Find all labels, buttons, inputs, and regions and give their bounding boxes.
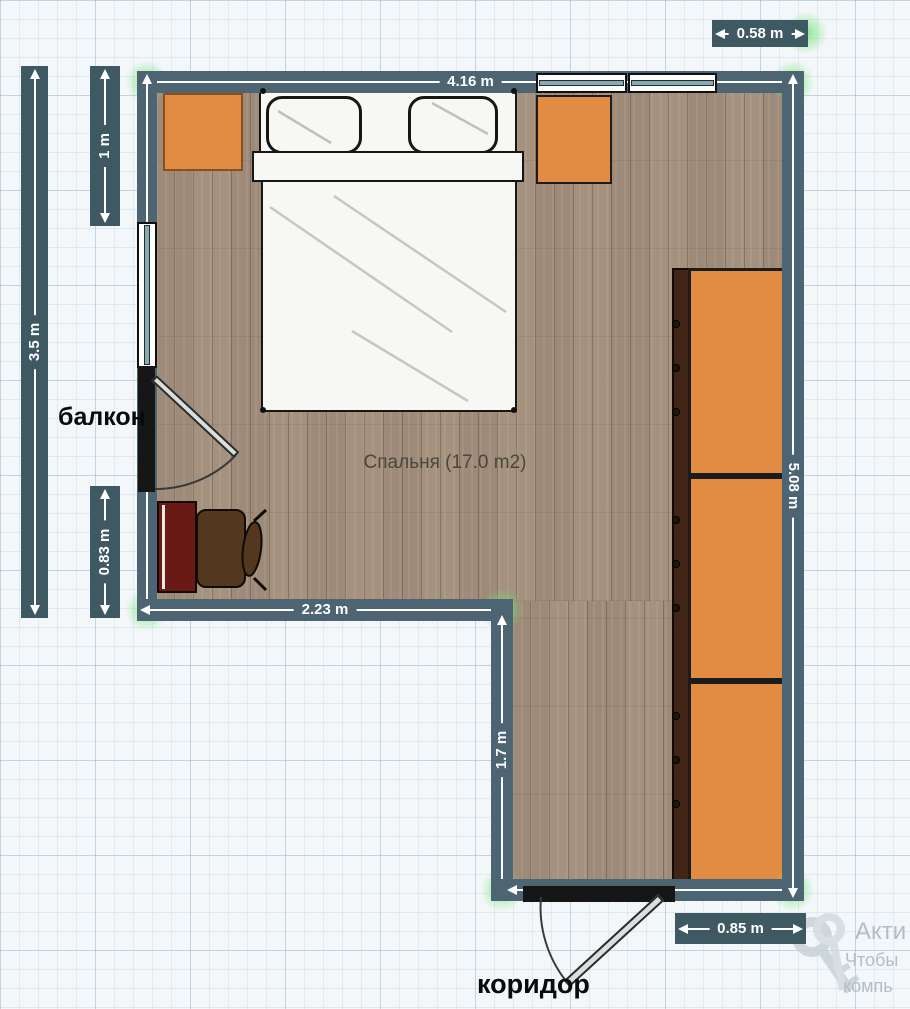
nightstand-left[interactable] — [163, 93, 243, 171]
bed-corner-dot — [511, 407, 517, 413]
dimension-top-right-offset: 0.58 m — [712, 20, 808, 47]
arrow-down-icon — [100, 605, 110, 615]
dimension-left-total: 3.5 m — [21, 66, 48, 618]
arrow-up-icon — [30, 69, 40, 79]
dimension-door-offset: 0.85 m — [675, 913, 806, 944]
window-pane — [539, 80, 624, 86]
window-top-1[interactable] — [536, 73, 627, 93]
window-pane — [144, 225, 150, 365]
desk[interactable] — [157, 501, 197, 593]
dimension-label: 5.08 m — [783, 455, 803, 518]
bed-corner-dot — [260, 407, 266, 413]
desk-edge-highlight — [162, 505, 165, 589]
wardrobe-knob — [672, 560, 680, 568]
room-area-label: Спальня (17.0 m2) — [330, 452, 560, 474]
arrow-up-icon — [100, 489, 110, 499]
bed-pillow-right[interactable] — [408, 96, 498, 154]
wall-bottom-left: 2.23 m — [137, 599, 513, 621]
arrow-up-icon — [497, 615, 507, 625]
wardrobe-knob — [672, 364, 680, 372]
dimension-label: 3.5 m — [25, 315, 45, 369]
bed-pillow-left[interactable] — [266, 96, 362, 154]
arrow-up-icon — [100, 69, 110, 79]
balcony-label: балкон — [58, 403, 146, 432]
watermark-line-3: компь — [843, 976, 893, 997]
arrow-left-icon — [140, 605, 150, 615]
wardrobe-section-2[interactable] — [688, 476, 790, 681]
arrow-down-icon — [788, 888, 798, 898]
bed-corner-dot — [260, 88, 266, 94]
dimension-label: 1 m — [95, 125, 115, 167]
watermark-line-1: Акти — [855, 918, 906, 946]
arrow-left-icon — [507, 885, 517, 895]
dimension-left-upper: 1 m — [90, 66, 120, 226]
arrow-up-icon — [142, 74, 152, 84]
window-balcony[interactable] — [137, 222, 157, 368]
arrow-right-icon — [795, 29, 805, 39]
dimension-label: 0.58 m — [729, 24, 792, 44]
wardrobe-knob — [672, 516, 680, 524]
window-pane — [631, 80, 714, 86]
wardrobe-knob — [672, 756, 680, 764]
wall-right: 5.08 m — [782, 71, 804, 901]
arrow-down-icon — [30, 605, 40, 615]
corridor-label: коридор — [477, 969, 590, 1000]
bed-blanket-fold[interactable] — [252, 151, 524, 182]
dimension-label: 4.16 m — [439, 72, 502, 92]
bed-mattress[interactable] — [261, 180, 517, 412]
dimension-left-lower: 0.83 m — [90, 486, 120, 618]
wardrobe-knob — [672, 320, 680, 328]
dimension-label: 0.83 m — [95, 521, 115, 584]
wardrobe-knob — [672, 408, 680, 416]
window-top-2[interactable] — [628, 73, 717, 93]
wardrobe-section-1[interactable] — [688, 268, 790, 476]
wardrobe-section-3[interactable] — [688, 681, 790, 882]
nightstand-right[interactable] — [536, 95, 612, 184]
arrow-left-icon — [678, 924, 688, 934]
arrow-up-icon — [788, 74, 798, 84]
dimension-label: 1.7 m — [492, 723, 512, 777]
arrow-down-icon — [100, 213, 110, 223]
bed-corner-dot — [511, 88, 517, 94]
arrow-left-icon — [715, 29, 725, 39]
dimension-label: 0.85 m — [709, 919, 772, 939]
watermark-line-2: Чтобы — [845, 950, 898, 971]
wall-corridor-inner: 1.7 m — [491, 599, 513, 901]
wardrobe-knob — [672, 604, 680, 612]
office-chair[interactable] — [196, 509, 246, 588]
floor-plan-canvas: 4.16 m 2.23 m 1.7 m 5.08 m 0.58 m — [0, 0, 910, 1009]
wardrobe-knob — [672, 800, 680, 808]
arrow-right-icon — [793, 924, 803, 934]
dimension-label: 2.23 m — [294, 600, 357, 620]
wardrobe-knob — [672, 712, 680, 720]
